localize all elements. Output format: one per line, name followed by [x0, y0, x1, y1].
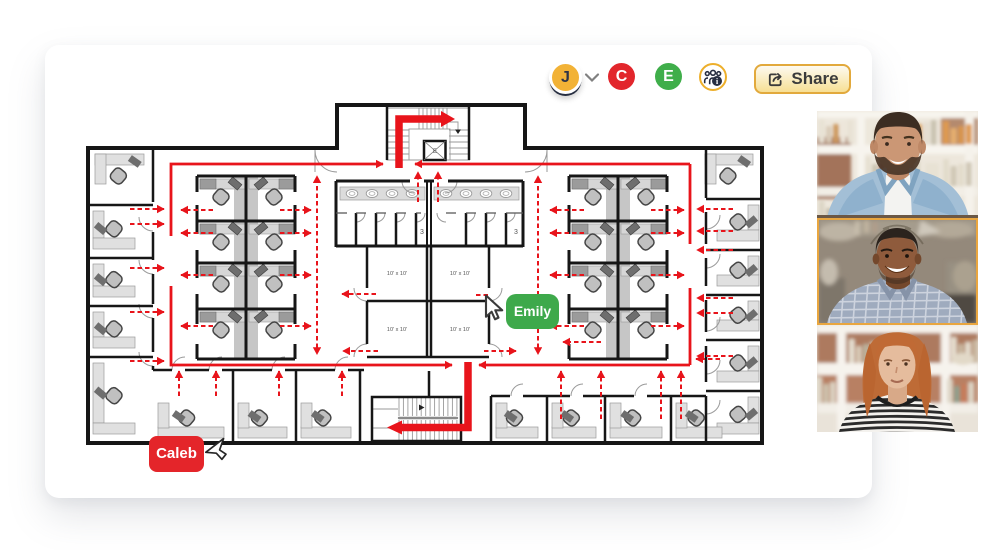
- svg-text:10' x 10': 10' x 10': [450, 327, 470, 333]
- svg-text:10' x 10': 10' x 10': [387, 271, 407, 277]
- svg-text:10' x 10': 10' x 10': [450, 271, 470, 277]
- svg-text:10' x 10': 10' x 10': [387, 327, 407, 333]
- svg-text:E: E: [433, 149, 437, 155]
- svg-text:3: 3: [420, 229, 424, 236]
- svg-text:3: 3: [514, 229, 518, 236]
